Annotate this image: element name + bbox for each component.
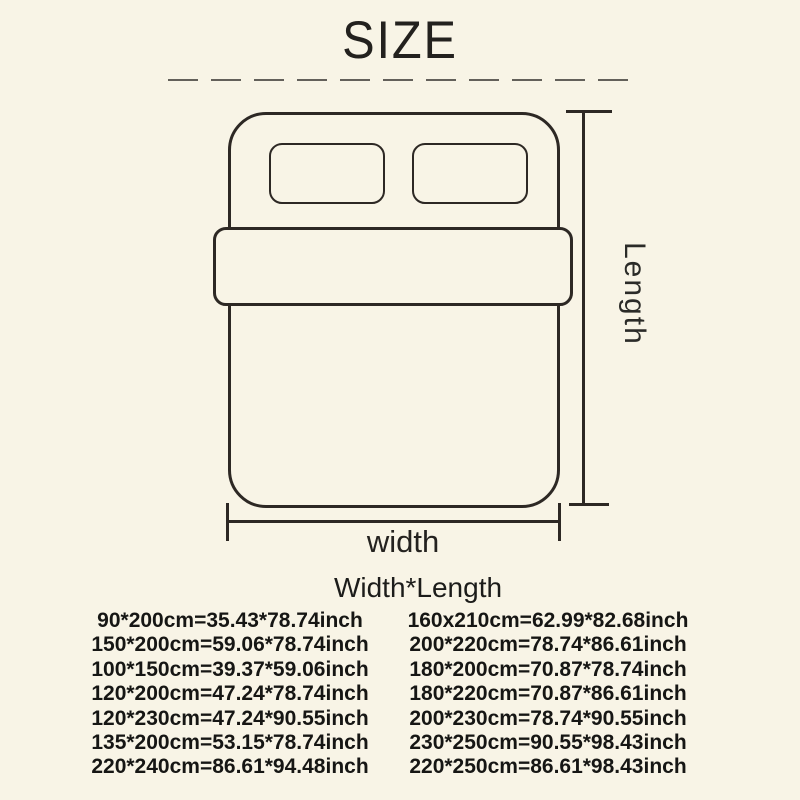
- size-row: 200*220cm=78.74*86.61inch: [368, 633, 728, 657]
- size-row: 220*240cm=86.61*94.48inch: [50, 755, 410, 779]
- size-row: 135*200cm=53.15*78.74inch: [50, 731, 410, 755]
- pillow-left: [269, 143, 385, 204]
- length-measure-line: [582, 111, 585, 505]
- length-measure-cap-top: [566, 110, 612, 113]
- width-measure-line: [227, 520, 561, 523]
- size-table-column-left: 90*200cm=35.43*78.74inch 150*200cm=59.06…: [50, 609, 410, 780]
- size-row: 220*250cm=86.61*98.43inch: [368, 755, 728, 779]
- width-measure-tick-right: [558, 503, 561, 541]
- page-title: SIZE: [32, 14, 768, 67]
- blanket-band: [213, 227, 573, 306]
- pillow-right: [412, 143, 528, 204]
- length-label: Length: [617, 242, 651, 346]
- size-row: 120*200cm=47.24*78.74inch: [50, 682, 410, 706]
- size-row: 160x210cm=62.99*82.68inch: [368, 609, 728, 633]
- size-row: 180*200cm=70.87*78.74inch: [368, 658, 728, 682]
- title-divider-dashed-line: [168, 79, 630, 81]
- size-table-column-right: 160x210cm=62.99*82.68inch 200*220cm=78.7…: [368, 609, 728, 780]
- width-measure-tick-left: [226, 503, 229, 541]
- size-row: 100*150cm=39.37*59.06inch: [50, 658, 410, 682]
- size-row: 200*230cm=78.74*90.55inch: [368, 707, 728, 731]
- size-row: 120*230cm=47.24*90.55inch: [50, 707, 410, 731]
- size-row: 230*250cm=90.55*98.43inch: [368, 731, 728, 755]
- size-row: 90*200cm=35.43*78.74inch: [50, 609, 410, 633]
- length-measure-cap-bottom: [569, 503, 609, 506]
- size-row: 150*200cm=59.06*78.74inch: [50, 633, 410, 657]
- size-table-header: Width*Length: [308, 572, 528, 604]
- width-label: width: [303, 524, 503, 560]
- size-row: 180*220cm=70.87*86.61inch: [368, 682, 728, 706]
